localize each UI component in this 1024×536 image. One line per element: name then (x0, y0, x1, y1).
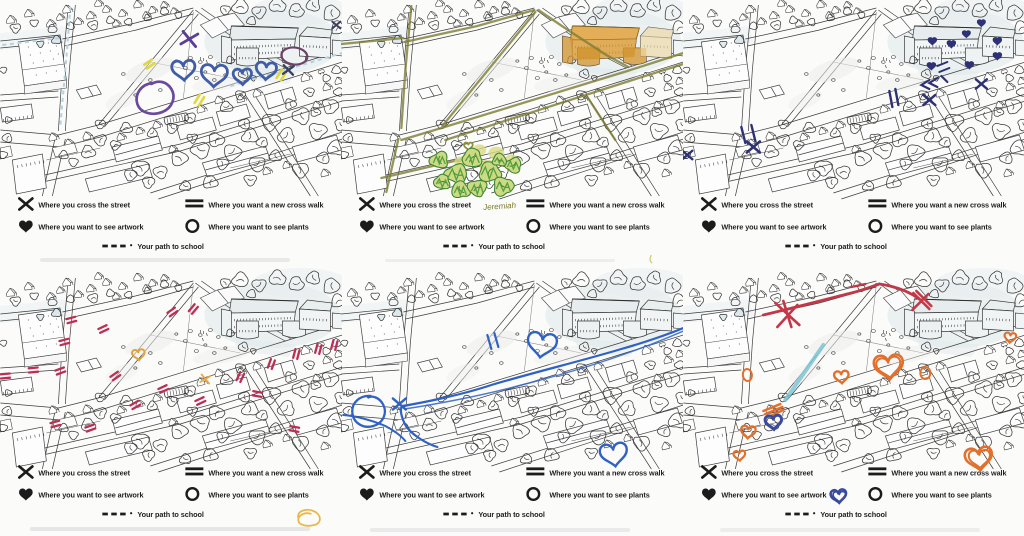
svg-text:Jeremiah: Jeremiah (482, 201, 517, 212)
